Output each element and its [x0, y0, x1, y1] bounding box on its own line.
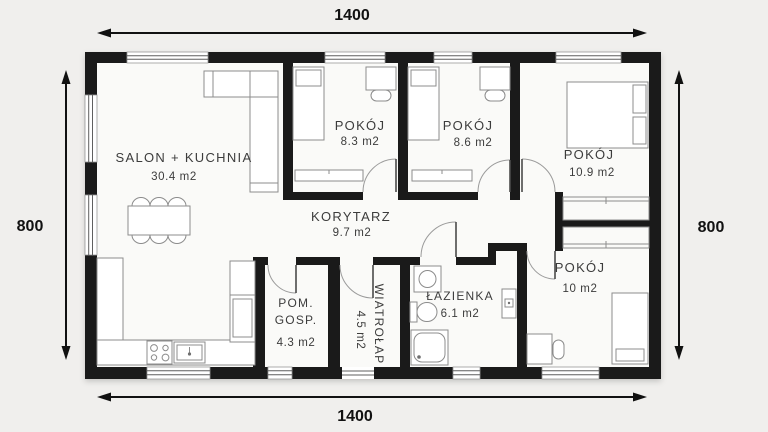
- stove: [147, 341, 172, 364]
- dining-table: [128, 198, 190, 244]
- dresser-pokoj86: [412, 170, 472, 181]
- bed-pokoj86: [408, 67, 439, 140]
- window-pokoj109-top: [556, 52, 621, 63]
- double-bed-pokoj109: [567, 82, 648, 148]
- dimension-left-value: 800: [17, 218, 44, 235]
- window-pokoj83-top: [325, 52, 385, 63]
- bed-pokoj83: [293, 67, 324, 140]
- toilet: [410, 302, 437, 322]
- room-label-pokoj83: POKÓJ: [335, 118, 386, 133]
- dimension-bottom-value: 1400: [337, 408, 373, 425]
- dimension-top-value: 1400: [334, 7, 370, 24]
- room-area-pomgosp: 4.3 m2: [277, 337, 316, 349]
- window-bathroom-bottom: [453, 367, 480, 379]
- shower: [411, 330, 448, 365]
- dimension-right-value: 800: [698, 219, 725, 236]
- dimension-left: 800: [17, 70, 71, 360]
- window-salon-top: [127, 52, 208, 63]
- room-label-pokoj109: POKÓJ: [564, 147, 615, 162]
- room-label-pomgosp-2: GOSP.: [275, 313, 317, 327]
- entrance-opening: [342, 367, 374, 379]
- room-label-korytarz: KORYTARZ: [311, 209, 391, 224]
- dresser-pokoj83: [295, 170, 363, 181]
- dimension-bottom: 1400: [97, 393, 647, 426]
- room-area-pokoj86: 8.6 m2: [454, 137, 493, 149]
- room-area-korytarz: 9.7 m2: [333, 227, 372, 239]
- room-label-salon: SALON + KUCHNIA: [116, 150, 253, 165]
- window-salon-left-lower: [85, 195, 97, 255]
- floor-plan: SALON + KUCHNIA 30.4 m2 POKÓJ 8.3 m2 POK…: [0, 0, 768, 432]
- room-area-lazienka: 6.1 m2: [441, 308, 480, 320]
- floor-plan-page: SALON + KUCHNIA 30.4 m2 POKÓJ 8.3 m2 POK…: [0, 0, 768, 432]
- room-label-pokoj86: POKÓJ: [443, 118, 494, 133]
- bathroom-cabinet: [502, 289, 516, 318]
- room-area-salon: 30.4 m2: [151, 171, 197, 183]
- kitchen-sink: [174, 342, 205, 363]
- window-pokoj10-bottom: [542, 367, 599, 379]
- room-label-pokoj10: POKÓJ: [555, 260, 606, 275]
- room-label-wiatrolap: WIATROŁAP: [372, 284, 386, 365]
- room-area-wiatrolap: 4.5 m2: [354, 311, 366, 350]
- window-pomgosp-bottom: [268, 367, 292, 379]
- room-area-pokoj10: 10 m2: [563, 283, 598, 295]
- dimension-right: 800: [675, 70, 725, 360]
- bed-pokoj10: [612, 293, 648, 364]
- dimension-top: 1400: [97, 7, 647, 38]
- room-area-pokoj83: 8.3 m2: [341, 136, 380, 148]
- room-label-pomgosp-1: POM.: [278, 296, 313, 310]
- room-label-lazienka: ŁAZIENKA: [426, 289, 494, 303]
- window-pokoj86-top: [434, 52, 472, 63]
- window-kitchen-bottom: [147, 367, 210, 379]
- room-area-pokoj109: 10.9 m2: [569, 167, 615, 179]
- fridge: [230, 295, 255, 342]
- window-salon-left-upper: [85, 95, 97, 162]
